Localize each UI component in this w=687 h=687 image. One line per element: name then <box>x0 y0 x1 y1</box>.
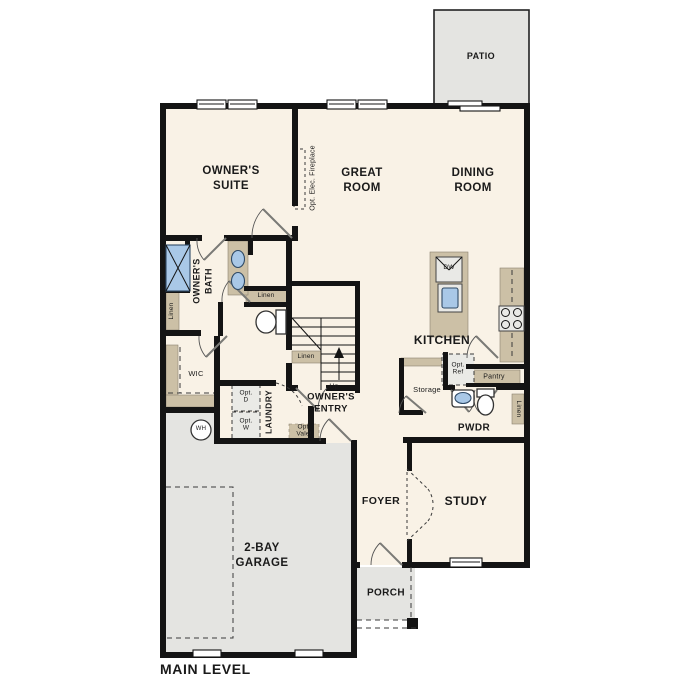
room-label-owners-bath: OWNER'S BATH <box>191 258 214 303</box>
wall-segment <box>399 410 423 415</box>
feature-label-linen-stair: Linen <box>298 353 315 361</box>
room-label-wic: WIC <box>188 369 203 379</box>
feature-label-opt-fireplace: Opt. Elec. Fireplace <box>308 145 317 210</box>
wall-segment <box>286 363 292 388</box>
feature-label-linen-bath: Linen <box>168 303 176 320</box>
feature-label-opt-washer: Opt. W <box>239 418 252 433</box>
room-label-dining-room: DINING ROOM <box>452 166 495 196</box>
feature-label-opt-valet: Opt. Valet <box>296 424 311 439</box>
room-label-garage: 2-BAY GARAGE <box>236 541 289 571</box>
garage-door-marker <box>295 650 323 657</box>
wall-segment <box>355 281 360 393</box>
feature-label-up: Up <box>329 382 338 391</box>
wall-segment <box>160 235 202 241</box>
feature-label-linen-hall: Linen <box>258 292 275 300</box>
pwdr-sink <box>452 390 474 407</box>
room-label-porch: PORCH <box>367 587 405 600</box>
room-label-foyer: FOYER <box>362 495 400 509</box>
island-sink <box>438 284 462 312</box>
window <box>327 100 356 109</box>
wall-segment <box>214 380 276 386</box>
wic-shelf-bottom <box>166 395 218 407</box>
floor-plan-drawing <box>0 0 687 687</box>
wall-segment <box>286 238 292 350</box>
feature-label-linen-pwdr: Linen <box>514 401 522 418</box>
garage-floor <box>163 413 351 652</box>
room-label-kitchen: KITCHEN <box>414 333 470 349</box>
range <box>499 306 524 331</box>
room-label-owners-suite: OWNER'S SUITE <box>202 164 259 194</box>
feature-label-water-heater: WH <box>196 426 206 434</box>
feature-label-opt-ref: Opt. Ref <box>451 362 464 377</box>
wall-segment <box>466 364 524 369</box>
wall-segment <box>160 652 357 658</box>
window <box>358 100 387 109</box>
wall-segment <box>288 281 358 286</box>
shower <box>166 245 190 291</box>
wall-segment <box>214 336 220 443</box>
feature-label-opt-dryer: Opt. D <box>239 390 252 405</box>
floor-plan: PATIO OWNER'S SUITE GREAT ROOM DINING RO… <box>0 0 687 687</box>
room-label-patio: PATIO <box>467 51 495 63</box>
vanity-sink <box>232 273 245 290</box>
plan-title: MAIN LEVEL <box>160 661 251 677</box>
toilet <box>256 310 286 334</box>
wall-segment <box>403 437 530 443</box>
window <box>228 100 257 109</box>
room-label-great-room: GREAT ROOM <box>341 166 382 196</box>
room-label-owners-entry: OWNER'S ENTRY <box>307 392 355 417</box>
wall-segment <box>244 302 290 307</box>
wall-segment <box>443 385 455 390</box>
window <box>450 558 482 567</box>
feature-label-dishwasher: DW <box>443 264 454 272</box>
window <box>197 100 226 109</box>
feature-label-pantry: Pantry <box>483 372 504 381</box>
garage-door-marker <box>193 650 221 657</box>
wall-segment <box>248 241 253 255</box>
porch-pier <box>407 618 418 629</box>
room-label-storage: Storage <box>413 385 441 395</box>
kitchen-half-wall <box>401 358 443 366</box>
wall-segment <box>524 103 530 568</box>
room-label-pwdr: PWDR <box>458 422 490 435</box>
vanity-sink <box>232 251 245 268</box>
wall-segment <box>163 407 218 413</box>
wall-segment <box>244 286 290 291</box>
wall-segment <box>407 443 412 471</box>
room-label-study: STUDY <box>445 494 488 510</box>
pwdr-toilet <box>477 389 494 415</box>
wall-segment <box>443 352 448 388</box>
wall-segment <box>292 106 298 206</box>
wall-segment <box>218 302 223 336</box>
wall-segment <box>160 103 166 658</box>
wall-segment <box>466 383 524 387</box>
room-label-laundry: LAUNDRY <box>263 390 274 434</box>
wall-segment <box>163 330 201 336</box>
wall-segment <box>407 539 412 565</box>
wall-segment <box>351 440 357 658</box>
